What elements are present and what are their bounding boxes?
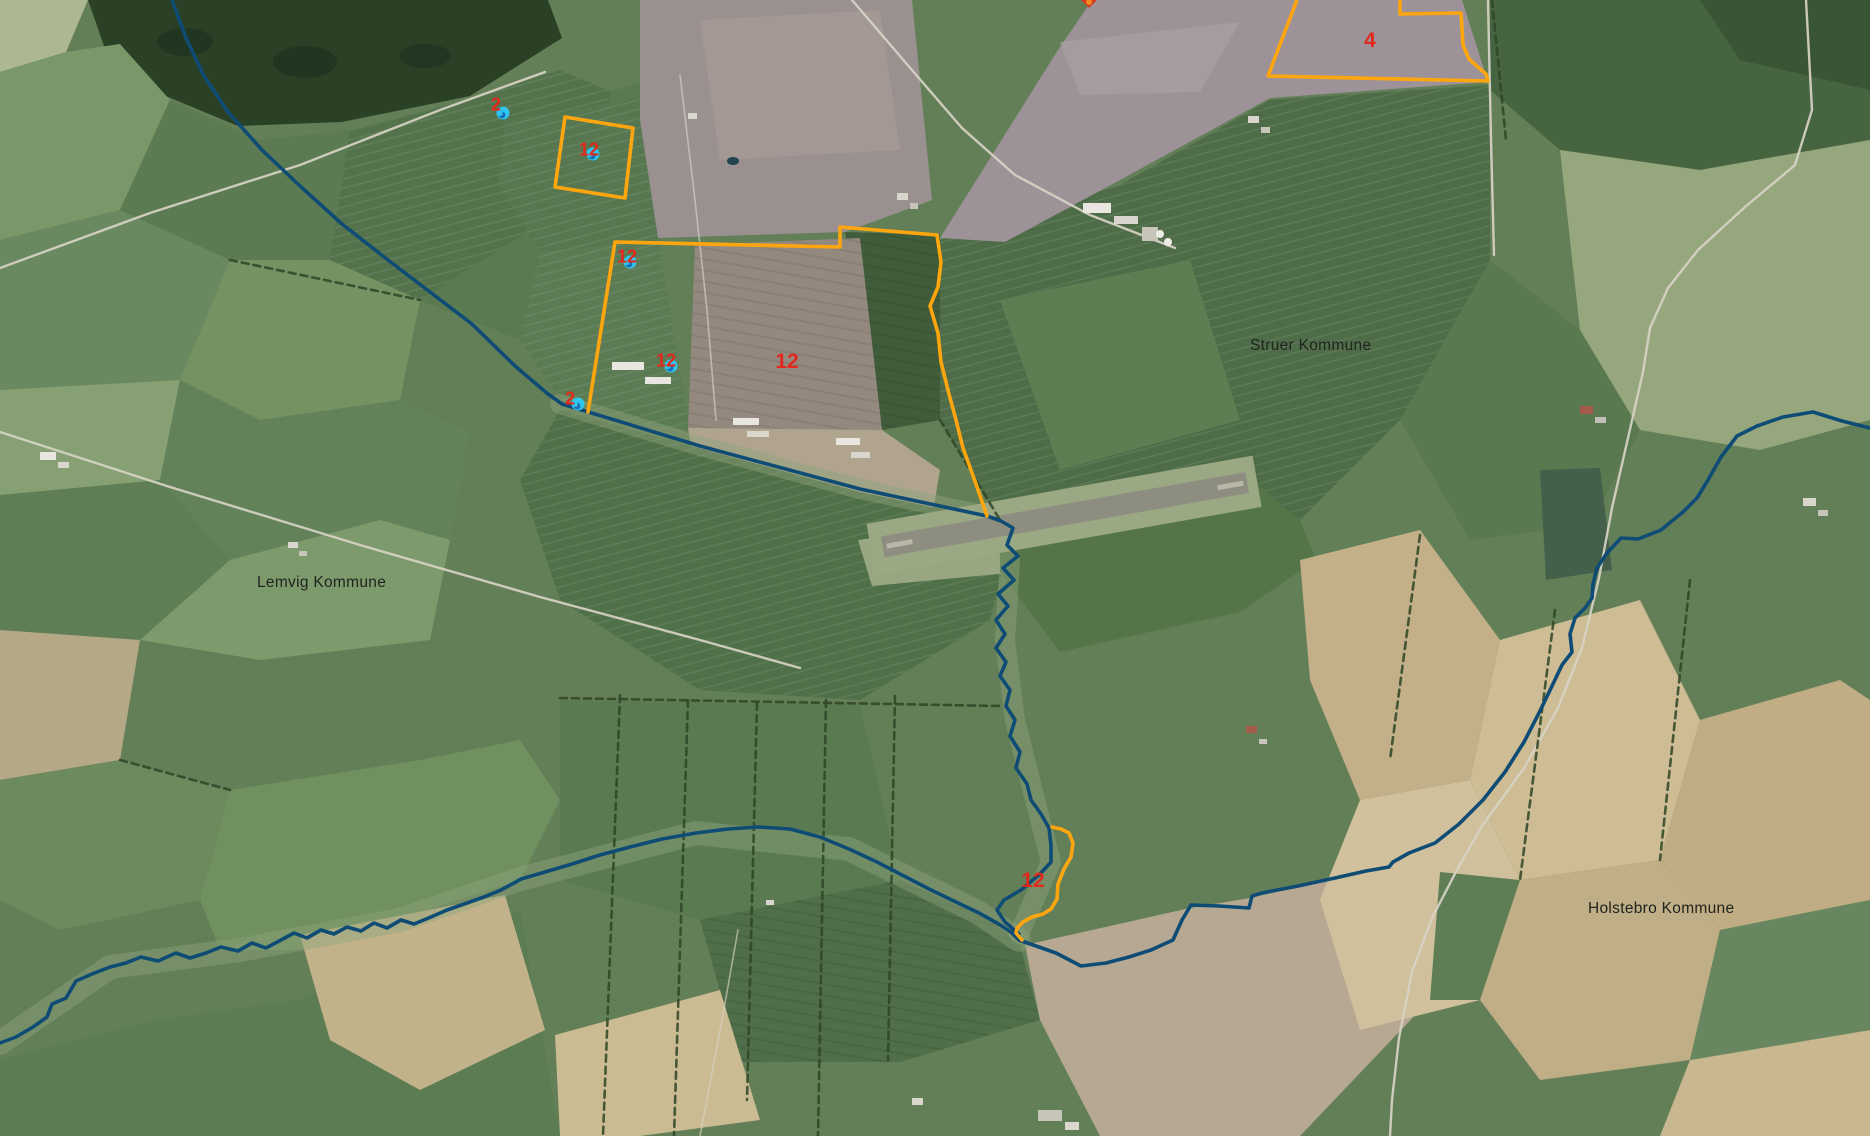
aerial-basemap [0, 0, 1870, 1136]
sample-point-marker[interactable] [665, 360, 678, 373]
sample-point-marker[interactable] [587, 148, 600, 161]
sample-point-marker[interactable] [624, 256, 637, 269]
sample-point-marker[interactable] [497, 107, 510, 120]
sample-point-marker[interactable] [572, 398, 585, 411]
map-viewport[interactable]: Lemvig Kommune Struer Kommune Holstebro … [0, 0, 1870, 1136]
